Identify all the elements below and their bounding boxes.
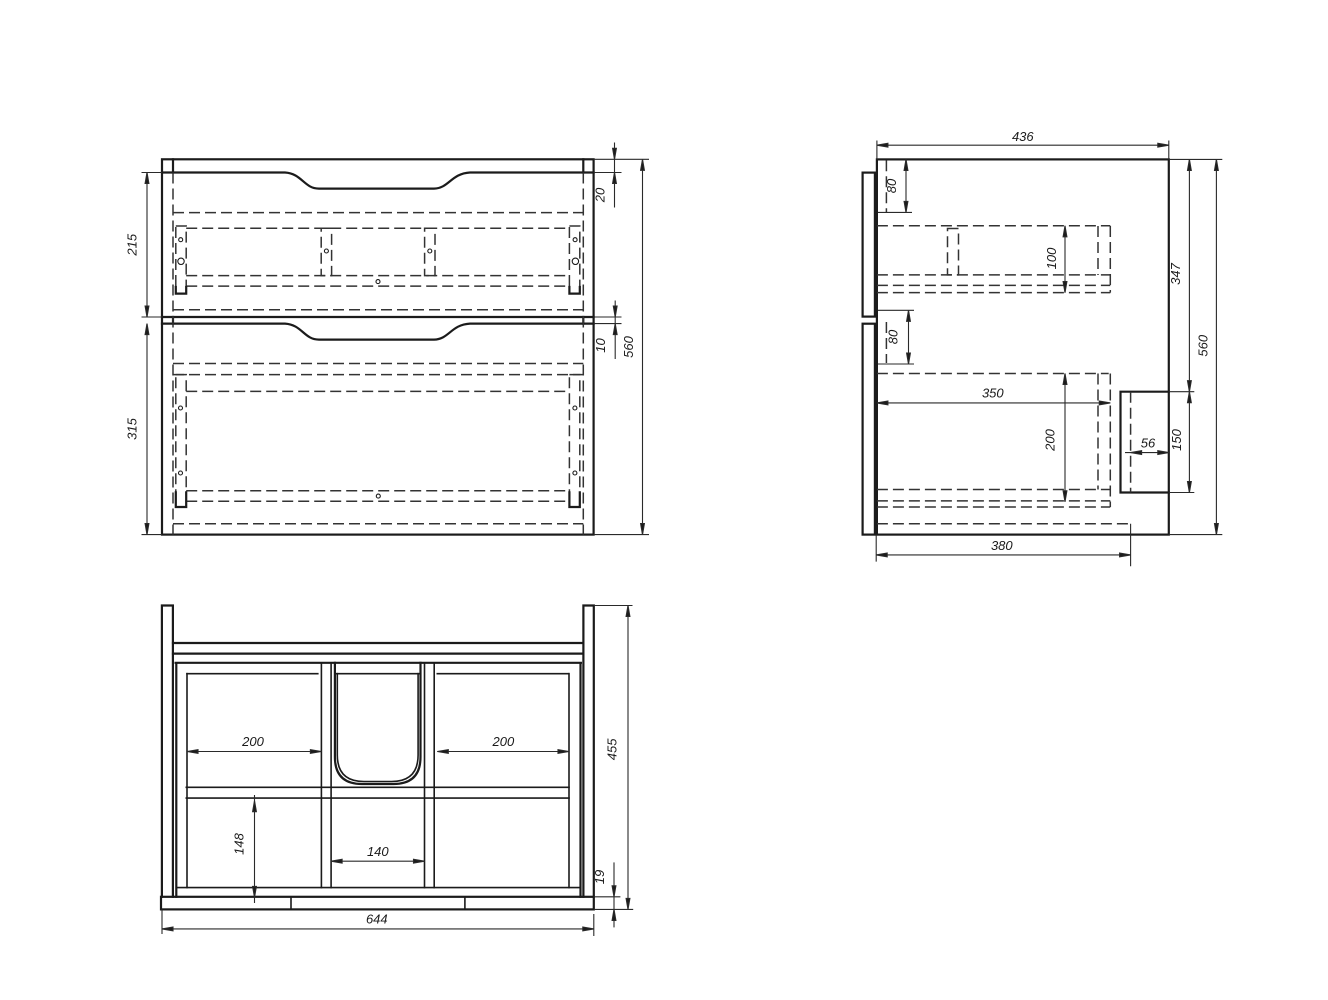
svg-text:20: 20 (593, 187, 608, 203)
svg-text:315: 315 (125, 417, 140, 439)
svg-text:560: 560 (1195, 334, 1210, 356)
svg-text:200: 200 (241, 734, 264, 749)
svg-text:150: 150 (1169, 428, 1184, 450)
svg-text:560: 560 (621, 335, 636, 357)
svg-text:10: 10 (593, 338, 608, 353)
svg-text:56: 56 (1141, 436, 1156, 451)
svg-text:347: 347 (1168, 262, 1183, 284)
svg-text:380: 380 (991, 538, 1013, 553)
svg-text:100: 100 (1044, 247, 1059, 269)
svg-text:455: 455 (605, 738, 620, 760)
svg-text:19: 19 (592, 870, 607, 884)
svg-text:215: 215 (125, 233, 140, 256)
svg-text:140: 140 (367, 844, 389, 859)
svg-text:80: 80 (886, 329, 901, 344)
svg-text:644: 644 (366, 912, 388, 927)
svg-text:148: 148 (232, 832, 247, 854)
svg-text:200: 200 (1043, 428, 1058, 451)
svg-text:350: 350 (982, 386, 1004, 401)
svg-text:436: 436 (1012, 129, 1034, 144)
svg-text:80: 80 (884, 178, 899, 193)
svg-text:200: 200 (492, 734, 515, 749)
